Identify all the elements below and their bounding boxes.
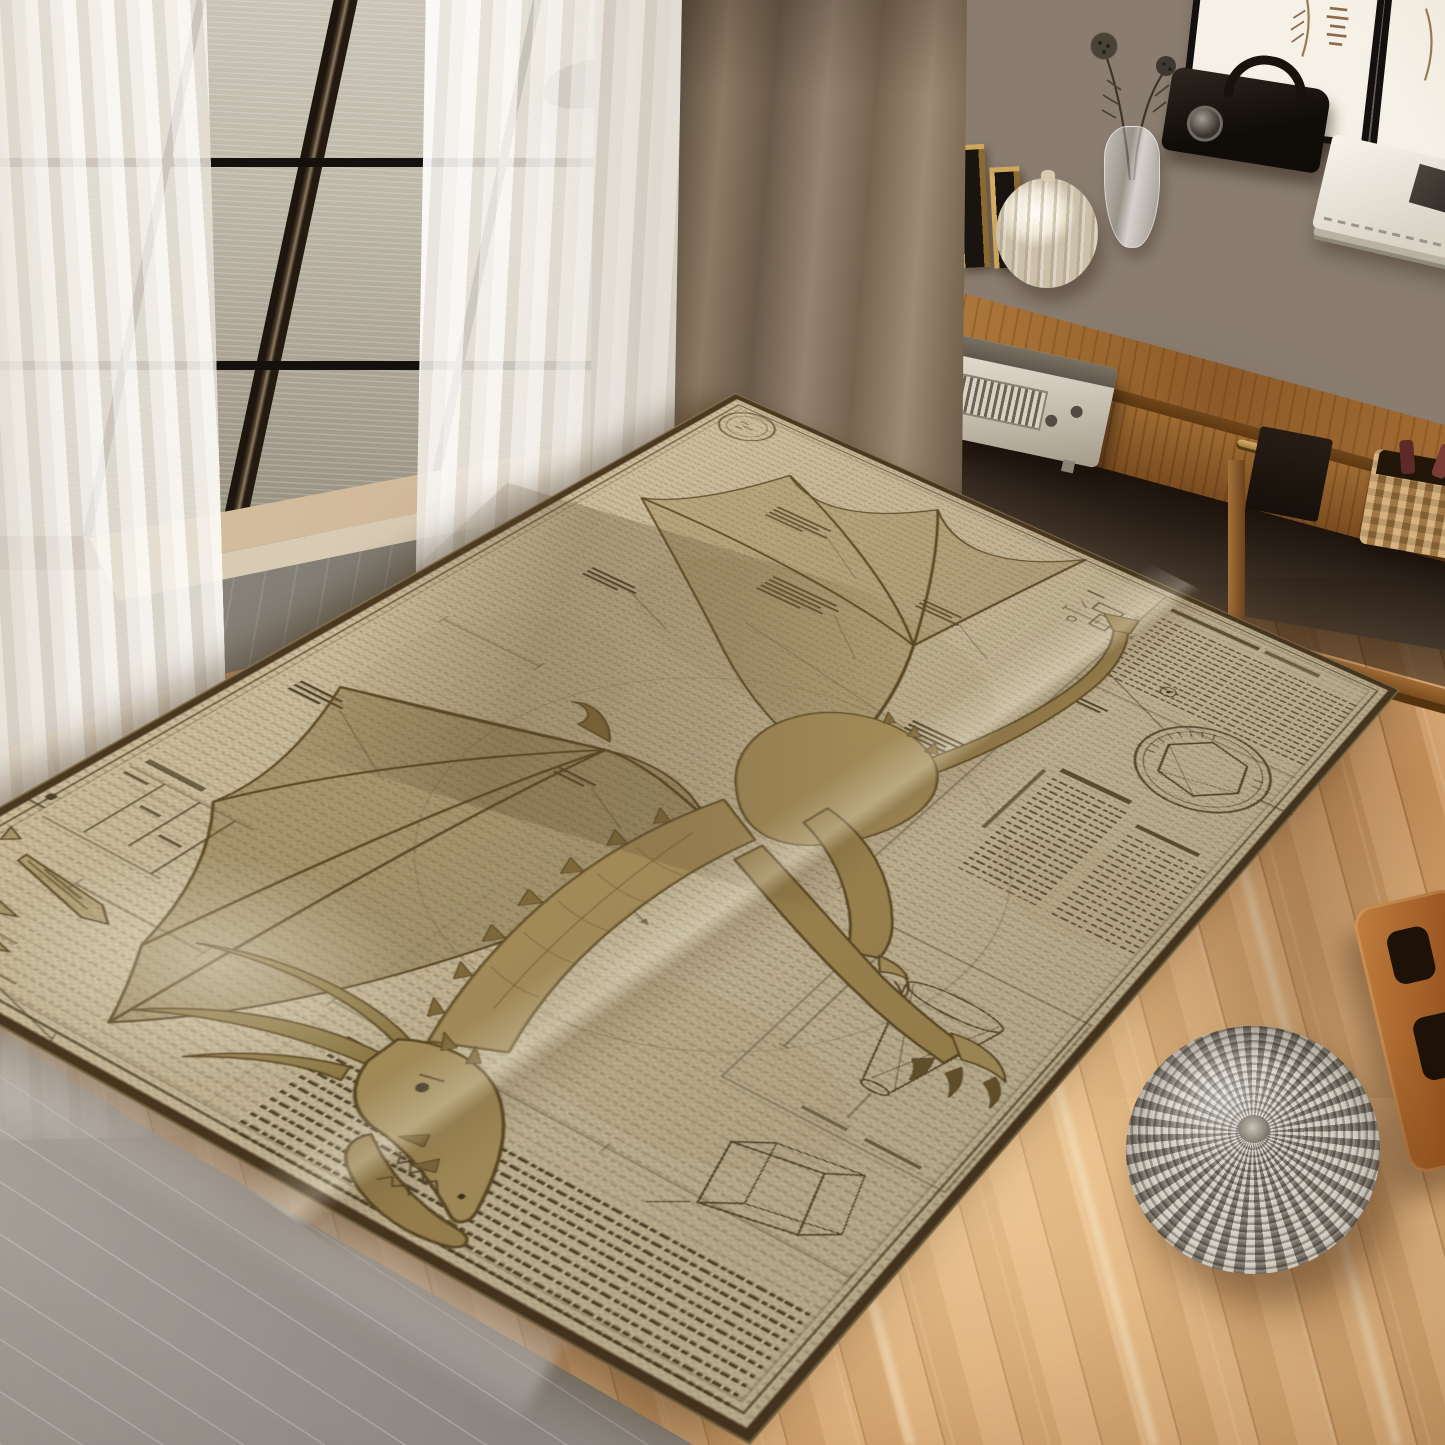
- gourd-vase: [996, 178, 1098, 288]
- room-scene: [0, 0, 1445, 1445]
- glass-vase: [1104, 126, 1160, 248]
- stand-cutout: [1385, 924, 1438, 986]
- knitted-pouf: [1126, 1026, 1380, 1274]
- keepsake-box: [1245, 426, 1334, 523]
- radio-knob: [1044, 414, 1058, 428]
- book-stack: [1312, 134, 1445, 271]
- basket-item: [1399, 440, 1415, 475]
- stand-cutout: [1411, 1010, 1445, 1083]
- radio-foot: [1061, 459, 1075, 473]
- window-center-mullion: [219, 0, 363, 536]
- radio-knob: [1069, 405, 1083, 419]
